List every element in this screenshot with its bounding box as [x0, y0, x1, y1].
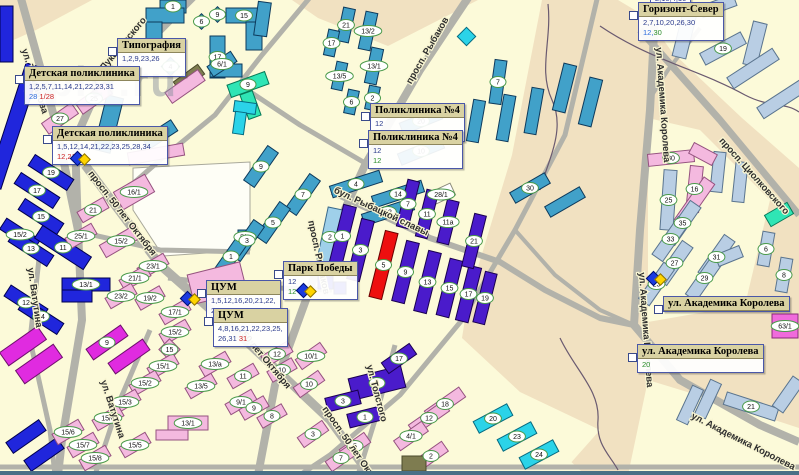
building-number: 21	[470, 238, 478, 245]
building-number: 15/8	[88, 455, 102, 462]
building-number: 4	[354, 181, 358, 188]
building-number: 25/1	[74, 233, 88, 240]
building[interactable]	[62, 290, 92, 302]
callout-title: Детская поликлиника	[25, 67, 139, 81]
building-number: 13/2	[361, 28, 375, 35]
building-number: 13/5	[333, 73, 347, 80]
building[interactable]	[6, 420, 46, 454]
building-number: 15/2	[13, 232, 27, 239]
building[interactable]	[0, 6, 13, 62]
callout-number: 1,5,12,14,21,22,23,25,28,34	[57, 142, 151, 151]
building-number: 15	[446, 285, 454, 292]
building-number: 19	[719, 46, 727, 53]
building[interactable]	[457, 27, 475, 45]
callout-anchor[interactable]	[629, 11, 638, 20]
callout-body: 4,8,16,21,22,23,25,26,31 31	[214, 323, 287, 346]
building-number: 23/1	[146, 263, 160, 270]
landmark-icon[interactable]	[72, 152, 90, 165]
map-callout[interactable]: Горизонт-Север2,7,10,20,26,3012,30	[638, 2, 724, 41]
building-number: 10	[305, 381, 313, 388]
building-number: 13	[424, 279, 432, 286]
map-bottom-bar	[0, 471, 799, 475]
landmark-icon[interactable]	[182, 292, 200, 305]
building-number: 4/1	[406, 433, 416, 440]
building-number: 9	[404, 269, 408, 276]
callout-anchor[interactable]	[654, 305, 663, 314]
callout-body: 1212	[369, 145, 462, 168]
callout-anchor[interactable]	[43, 135, 52, 144]
building-number: 6	[764, 246, 768, 253]
building-number: 5	[271, 220, 275, 227]
callout-number: 4,8,16,21,22,23,25,	[218, 324, 283, 333]
building-number: 3	[341, 398, 345, 405]
building-number: 17	[465, 291, 473, 298]
building-number: 27	[56, 116, 64, 123]
building-number: 1	[341, 233, 345, 240]
building[interactable]	[156, 430, 188, 440]
building-number: 8	[782, 272, 786, 279]
callout-title: ЦУМ	[207, 281, 280, 295]
callout-title: Горизонт-Север	[639, 3, 723, 17]
building-number: 15	[166, 347, 174, 354]
building-number: 15/7	[76, 442, 90, 449]
building-number: 25	[665, 197, 673, 204]
building-number: 2	[328, 234, 332, 241]
building-number: 13/1	[181, 420, 195, 427]
building-number: 15/1	[156, 363, 170, 370]
callout-number: 31	[239, 334, 247, 343]
map-callout[interactable]: ЦУМ4,8,16,21,22,23,25,26,31 31	[213, 308, 288, 347]
building-number: 28/1	[434, 192, 448, 199]
map-callout[interactable]: ул. Академика Королева	[663, 296, 790, 312]
building-number: 21	[747, 404, 755, 411]
building-number: 7	[496, 79, 500, 86]
callout-body: 1,5,12,14,21,22,23,25,28,3412,21	[53, 141, 167, 164]
callout-number: 1/28	[39, 92, 54, 101]
callout-title: ЦУМ	[214, 309, 287, 323]
building-number: 11а	[442, 219, 453, 226]
building-number: 10/1	[304, 353, 318, 360]
callout-title: ул. Академика Королева	[638, 345, 763, 359]
callout-number: 12	[288, 277, 296, 286]
callout-number: 1,2,5,7,11,14,21,22,23,31	[29, 82, 114, 91]
building-number: 15/2	[114, 238, 128, 245]
building-number: 13/1	[367, 63, 381, 70]
building-number: 8	[270, 413, 274, 420]
building-number: 15/5	[128, 442, 142, 449]
callout-anchor[interactable]	[204, 317, 213, 326]
building-number: 30	[526, 185, 534, 192]
building-number: 63/1	[778, 323, 792, 330]
building-number: 18	[441, 401, 449, 408]
building-number: 17	[33, 188, 41, 195]
building-number: 15/3	[118, 399, 132, 406]
building-number: 9	[259, 164, 263, 171]
building-number: 15/2	[168, 329, 182, 336]
building-number: 35	[679, 220, 687, 227]
map-canvas[interactable]: 115691746/1252792113/21713/113/562201074…	[0, 0, 799, 475]
callout-anchor[interactable]	[274, 270, 283, 279]
callout-title: Детская поликлиника	[53, 127, 167, 141]
building-number: 11	[239, 373, 246, 380]
building-number: 17/1	[168, 309, 182, 316]
building-number: 17	[395, 356, 403, 363]
building-number: 11	[59, 245, 66, 252]
callout-body: 20	[638, 359, 763, 372]
building-number: 9/1	[236, 399, 246, 406]
building-number: 20	[489, 416, 497, 423]
building-number: 3	[245, 238, 249, 245]
building-number: 9	[105, 340, 109, 347]
building-number: 1	[363, 414, 367, 421]
building-number: 6	[200, 19, 204, 26]
building-number: 21	[89, 207, 97, 214]
building-number: 21	[342, 22, 350, 29]
building-number: 1	[229, 254, 233, 261]
callout-body: 1,2,5,7,11,14,21,22,23,3128 1/28	[25, 81, 139, 104]
building-number: 24	[535, 452, 543, 459]
callout-number: 20	[642, 360, 650, 369]
building-number: 23	[513, 434, 521, 441]
building[interactable]	[466, 99, 485, 142]
building-number: 19/2	[143, 295, 157, 302]
building-number: 12	[273, 351, 281, 358]
callout-title: Типография	[118, 39, 185, 53]
callout-number: 2,7,10,20,26,30	[643, 18, 695, 27]
callout-number: 12	[288, 287, 296, 296]
building-number: 15/6	[61, 429, 75, 436]
callout-number: 1,2,9,23,26	[122, 54, 160, 63]
building[interactable]	[254, 1, 272, 36]
callout-number: 12	[373, 156, 381, 165]
building-number: 19	[47, 170, 55, 177]
building-number: 6	[350, 99, 354, 106]
callout-number: 28	[29, 92, 39, 101]
building-number: 15/2	[138, 380, 152, 387]
building-number: 9	[252, 405, 256, 412]
building-number: 31	[713, 254, 721, 261]
callout-title: Поликлиника №4	[371, 104, 464, 118]
building-number: 3	[311, 431, 315, 438]
callout-anchor[interactable]	[628, 353, 637, 362]
building[interactable]	[233, 111, 247, 134]
building-number: 13/5	[194, 383, 208, 390]
building-number: 14	[394, 191, 402, 198]
building-number: 12	[425, 415, 433, 422]
callout-anchor[interactable]	[15, 75, 24, 84]
building-number: 7	[339, 455, 343, 462]
callout-number: 12	[375, 119, 383, 128]
road	[240, 85, 365, 163]
building-number: 33	[667, 236, 675, 243]
callout-title: ул. Академика Королева	[664, 297, 789, 311]
landmark-icon[interactable]	[298, 284, 316, 297]
building-number: 27	[671, 260, 679, 267]
building-number: 7	[406, 201, 410, 208]
map-callout[interactable]: Парк Победы1212	[283, 261, 358, 300]
building-number: 9	[216, 12, 220, 19]
building-number: 6/1	[217, 61, 227, 68]
building-number: 1	[171, 4, 175, 11]
building-number: 13/а	[208, 361, 222, 368]
map-callout[interactable]: Детская поликлиника1,2,5,7,11,14,21,22,2…	[24, 66, 140, 105]
building-number: 2	[429, 453, 433, 460]
building-number: 5	[382, 262, 386, 269]
building-number: 16/1	[127, 189, 141, 196]
callout-number: 12,	[643, 28, 653, 37]
tan-top-left	[0, 0, 92, 46]
building-number: 19	[481, 295, 489, 302]
building-number: 2	[371, 95, 375, 102]
building-number: 9	[246, 82, 250, 89]
building-number: 15	[240, 13, 248, 20]
callout-number: 30	[653, 28, 661, 37]
building[interactable]	[402, 456, 426, 471]
map-callout[interactable]: ул. Академика Королева20	[637, 344, 764, 373]
callout-body: 1212	[284, 276, 357, 299]
landmark-icon[interactable]	[648, 272, 666, 285]
building-number: 12	[22, 300, 30, 307]
callout-number: 26,31	[218, 334, 239, 343]
building-number: 7	[301, 192, 305, 199]
callout-number: 12	[373, 146, 381, 155]
building-number: 13	[27, 246, 35, 253]
callout-title: Поликлиника №4	[369, 131, 462, 145]
callout-title: Парк Победы	[284, 262, 357, 276]
callout-anchor[interactable]	[361, 112, 370, 121]
callout-anchor[interactable]	[359, 139, 368, 148]
building-number: 29	[701, 275, 709, 282]
building-number: 15	[37, 214, 45, 221]
building-number: 16	[691, 186, 699, 193]
map-callout[interactable]: Поликлиника №41212	[368, 130, 463, 169]
building-number: 17	[328, 40, 336, 47]
building-number: 11	[423, 211, 430, 218]
callout-number: 1,5,12,16,20,21,22,	[211, 296, 276, 305]
callout-anchor[interactable]	[108, 47, 117, 56]
building-number: 21/1	[128, 275, 142, 282]
building-number: 3	[359, 247, 363, 254]
building-number: 13/1	[79, 282, 93, 289]
building-number: 23/2	[114, 293, 128, 300]
callout-body: 2,7,10,20,26,3012,30	[639, 17, 723, 40]
